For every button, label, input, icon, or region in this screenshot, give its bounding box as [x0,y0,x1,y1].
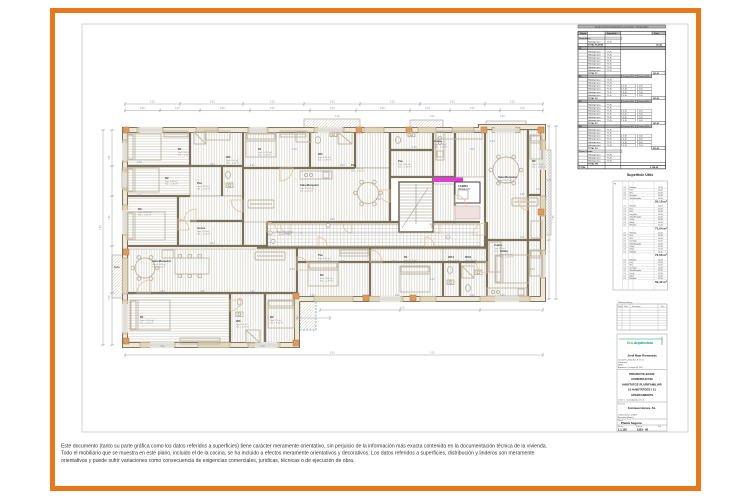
svg-text:2.1: 2.1 [624,243,627,245]
svg-text:Sup: 8.9 m²: Sup: 8.9 m² [494,247,506,250]
svg-text:Per: Per [661,306,664,308]
svg-text:Sup: 4.45 m²: Sup: 4.45 m² [318,156,331,159]
svg-text:Habitatge tipus: Habitatge tipus [588,94,601,97]
svg-text:Dormitori: Dormitori [630,194,638,197]
svg-text:7.25: 7.25 [546,195,548,200]
svg-text:2.1: 2.1 [624,217,627,219]
svg-text:Habitatge tipus: Habitatge tipus [588,113,601,116]
svg-text:Habitatge tipus: Habitatge tipus [588,153,601,156]
svg-text:3.10: 3.10 [430,116,435,118]
svg-text:Sup: 3.3 m²: Sup: 3.3 m² [465,259,477,262]
svg-text:Rev.N: Rev.N [618,306,624,308]
svg-text:Sup: 9.20 m²: Sup: 9.20 m² [500,253,513,256]
svg-text:3.10: 3.10 [390,102,395,104]
svg-text:Terrassa (50%): Terrassa (50%) [638,75,650,78]
svg-text:WC2: WC2 [465,255,472,259]
svg-text:77,45: 77,45 [607,136,612,138]
svg-text:Sala-Menjador: Sala-Menjador [498,175,518,179]
svg-text:2.1: 2.1 [624,276,627,278]
svg-text:Pas: Pas [318,253,323,257]
svg-text:2.1: 2.1 [624,241,627,243]
svg-text:2.40: 2.40 [250,291,255,293]
svg-text:3.10: 3.10 [450,102,455,104]
svg-text:2.1: 2.1 [624,235,627,237]
svg-text:Sup: 10.30 m²: Sup: 10.30 m² [138,211,152,214]
svg-text:Sup: 3.05 m²: Sup: 3.05 m² [398,163,411,166]
svg-text:Sol + 1.20 m²: Sol + 1.20 m² [318,260,331,263]
svg-text:77,45: 77,45 [607,154,612,156]
svg-text:2.40: 2.40 [290,269,295,271]
svg-text:73,56 m²: 73,56 m² [655,253,667,257]
svg-text:C/ Barcelona Ca 08/19: C/ Barcelona Ca 08/19 [618,413,637,416]
svg-text:TOTAL P3: TOTAL P3 [588,122,598,125]
svg-text:Habitatge tipus: Habitatge tipus [588,128,601,131]
svg-text:2.1: 2.1 [624,190,627,192]
svg-text:Habitatge tipus: Habitatge tipus [588,107,601,110]
svg-text:Superficie: Superficie [607,33,618,35]
svg-text:Arquitecte. Col·legiat 34.7817: Arquitecte. Col·legiat 34.7817 [618,366,643,369]
svg-text:orientativos y puede sufrir va: orientativos y puede sufrir variaciones … [61,458,354,464]
svg-text:3.10: 3.10 [510,102,515,104]
svg-text:HABITATGE PLURIFAMILIAR: HABITATGE PLURIFAMILIAR [622,382,662,386]
svg-text:2.40: 2.40 [376,199,381,201]
svg-text:123,45: 123,45 [656,44,663,47]
svg-text:12,34: 12,34 [658,241,663,243]
svg-text:Sol + 1.20 m²: Sol + 1.20 m² [498,182,511,185]
svg-text:2.40: 2.40 [392,261,397,263]
svg-text:12,34: 12,34 [658,222,663,224]
svg-text:Pas: Pas [630,235,633,237]
svg-text:WC1: WC1 [448,255,455,259]
svg-text:2.40: 2.40 [137,195,142,197]
svg-text:2.1: 2.1 [624,265,627,267]
svg-text:Promotor:: Promotor: [618,403,626,406]
svg-text:TOTAL P4: TOTAL P4 [588,147,598,150]
svg-text:2.1: 2.1 [624,208,627,210]
svg-text:Habitatge tipus: Habitatge tipus [588,116,601,119]
svg-text:Sala-Menjador: Sala-Menjador [630,217,642,219]
svg-text:Sup: 3.65 m²: Sup: 3.65 m² [318,257,331,260]
svg-text:12,34: 12,34 [658,243,663,245]
svg-text:Sol + 1.20 m²: Sol + 1.20 m² [434,146,447,149]
svg-text:Sol + 1.20 m²: Sol + 1.20 m² [152,266,165,269]
svg-text:Sol + 1.20 m²: Sol + 1.20 m² [318,159,331,162]
svg-text:2.1: 2.1 [624,249,627,251]
svg-text:Pas: Pas [351,163,356,167]
svg-text:Habitatge tipus: Habitatge tipus [588,53,601,56]
svg-text:Pas: Pas [630,208,633,210]
svg-text:Sup: 7.70 m²: Sup: 7.70 m² [434,143,447,146]
svg-text:Habitatge tipus: Habitatge tipus [588,85,601,88]
svg-text:Todo el mobiliario que se mues: Todo el mobiliario que se muestra en est… [61,451,535,457]
svg-text:WC: WC [318,152,323,156]
svg-text:WC: WC [226,155,231,159]
svg-text:77,45: 77,45 [607,108,612,110]
svg-text:Sol + 1.20 m²: Sol + 1.20 m² [197,233,210,236]
svg-text:Terrassa (50%): Terrassa (50%) [638,100,650,103]
svg-text:77,45: 77,45 [607,142,612,144]
svg-text:77,45: 77,45 [607,58,612,60]
svg-text:3.10: 3.10 [500,116,505,118]
svg-text:2.1: 2.1 [624,259,627,261]
svg-text:12,34: 12,34 [658,219,663,221]
svg-text:2.1: 2.1 [624,211,627,213]
svg-text:Sol + 1.20 m²: Sol + 1.20 m² [197,188,210,191]
svg-text:12,34: 12,34 [658,273,663,275]
svg-text:12,34: 12,34 [658,211,663,213]
svg-text:1923 - 06: 1923 - 06 [637,427,649,431]
svg-text:12,34: 12,34 [658,187,663,189]
svg-text:12,34: 12,34 [658,276,663,278]
svg-text:2.40: 2.40 [470,149,475,151]
svg-text:3.10: 3.10 [430,353,435,355]
svg-text:12,34: 12,34 [658,214,663,216]
svg-text:77,45: 77,45 [607,61,612,63]
svg-text:Habitatge tipus: Habitatge tipus [588,66,601,69]
svg-text:PROJECTE BASIC: PROJECTE BASIC [629,372,655,376]
svg-text:12,34: 12,34 [658,233,663,235]
svg-text:2.1: 2.1 [624,273,627,275]
svg-text:Sol + 1.20 m²: Sol + 1.20 m² [320,280,333,283]
svg-text:2.1: 2.1 [624,262,627,264]
svg-text:Balcó: Balcó [630,222,635,224]
svg-text:Sol + 1.20 m²: Sol + 1.20 m² [300,190,313,193]
svg-text:Sala-Menjador: Sala-Menjador [630,243,642,245]
svg-text:2.40: 2.40 [137,162,142,164]
svg-text:Terrassa (50%): Terrassa (50%) [623,100,635,103]
svg-text:2.1: 2.1 [624,222,627,224]
svg-text:Terrassa (50%): Terrassa (50%) [623,125,635,128]
svg-text:Habitatge tipus: Habitatge tipus [588,78,601,81]
svg-text:TOTAL PLANTA: TOTAL PLANTA [588,44,604,47]
svg-text:Acces: Acces [197,226,206,230]
svg-text:2.1: 2.1 [624,246,627,248]
svg-text:3.10: 3.10 [400,308,405,310]
svg-text:2,05: 2,05 [639,95,643,97]
svg-text:2.40: 2.40 [210,164,215,166]
svg-text:77,45: 77,45 [607,51,612,53]
svg-text:Habitatge tipus: Habitatge tipus [588,110,601,113]
svg-text:2,05: 2,05 [639,120,643,122]
svg-text:D1: D1 [404,255,408,259]
svg-text:12,34: 12,34 [658,249,663,251]
svg-text:TOTAL PB: TOTAL PB [588,163,598,166]
svg-text:Formasa Homes, SL.: Formasa Homes, SL. [628,406,657,410]
svg-text:2.40: 2.40 [340,261,345,263]
svg-text:77,45: 77,45 [607,54,612,56]
svg-text:12,34: 12,34 [658,246,663,248]
svg-text:D1: D1 [258,147,262,151]
svg-text:7.25: 7.25 [100,225,102,230]
svg-text:Revision History: Revision History [618,301,632,304]
svg-text:12,34: 12,34 [658,262,663,264]
svg-text:2.40: 2.40 [520,237,525,239]
svg-text:55,18 m²: 55,18 m² [655,200,667,204]
svg-text:WC: WC [236,319,241,323]
svg-text:3.10: 3.10 [150,102,155,104]
svg-text:12,34: 12,34 [658,208,663,210]
svg-text:77,45: 77,45 [607,64,612,66]
svg-text:Sup: 21.30 m²: Sup: 21.30 m² [300,187,314,190]
svg-text:Balco: Balco [114,266,121,269]
svg-text:59,42 m²: 59,42 m² [655,280,667,284]
svg-text:3.10: 3.10 [330,102,335,104]
svg-text:Planta Coberta: Planta Coberta [579,150,593,153]
svg-text:2.1: 2.1 [624,251,627,253]
svg-text:Cuina: Cuina [434,139,442,143]
svg-text:Terrassa (50%): Terrassa (50%) [623,75,635,78]
svg-text:77,45: 77,45 [607,95,612,97]
svg-text:Sup: 3.4 m²: Sup: 3.4 m² [448,259,460,262]
svg-text:345,60: 345,60 [653,122,660,125]
svg-text:2.1: 2.1 [624,219,627,221]
svg-text:7.25: 7.25 [109,155,111,160]
svg-text:D2: D2 [532,159,536,163]
svg-text:77,45: 77,45 [607,104,612,106]
svg-text:2.40: 2.40 [430,224,435,226]
svg-text:Habitatge tipus: Habitatge tipus [588,82,601,85]
svg-text:3.10: 3.10 [380,108,385,110]
svg-text:Sol + 1.20 m²: Sol + 1.20 m² [448,262,461,265]
svg-text:2.40: 2.40 [340,165,345,167]
svg-text:12,34: 12,34 [658,235,663,237]
svg-text:2.40: 2.40 [430,279,435,281]
svg-text:345,60: 345,60 [653,97,660,100]
svg-text:4,10: 4,10 [623,120,627,122]
svg-text:Dormitori: Dormitori [630,213,638,216]
svg-text:2.40: 2.40 [412,147,417,149]
svg-text:Sala-Menjador: Sala-Menjador [152,259,172,263]
svg-text:Sup: 9.45 m²: Sup: 9.45 m² [320,277,333,280]
svg-text:12,34: 12,34 [658,267,663,269]
svg-text:12,34: 12,34 [658,217,663,219]
svg-text:D2: D2 [320,273,324,277]
svg-text:Habitatge tipus: Habitatge tipus [588,141,601,144]
svg-text:Sol + 1.20 m²: Sol + 1.20 m² [465,262,478,265]
svg-text:12,34: 12,34 [658,195,663,197]
svg-text:Sol + 1.20 m²: Sol + 1.20 m² [138,214,151,217]
svg-text:H1: H1 [614,184,616,186]
svg-text:345,60: 345,60 [653,147,660,150]
svg-text:Sup: 9.65 m²: Sup: 9.65 m² [178,151,191,154]
svg-text:Sol + 1.20 m²: Sol + 1.20 m² [226,162,239,165]
svg-text:Planta: Planta [580,32,587,35]
svg-text:Habitatge tipus: Habitatge tipus [588,57,601,60]
svg-text:Terrassa (50%): Terrassa (50%) [638,125,650,128]
svg-text:Planta Baixa: Planta Baixa [579,37,591,40]
svg-text:2.40: 2.40 [490,141,495,143]
svg-text:77,45: 77,45 [607,70,612,72]
svg-text:Habitatge tipus: Habitatge tipus [588,138,601,141]
svg-text:Sup: 26.45 m²: Sup: 26.45 m² [498,179,512,182]
svg-text:Sup: 4.10 m²: Sup: 4.10 m² [197,230,210,233]
svg-text:1:1.150: 1:1.150 [618,427,627,431]
svg-text:Sala-Menjador: Sala-Menjador [300,183,320,187]
svg-text:2.1: 2.1 [624,195,627,197]
svg-text:Balcó: Balcó [630,249,635,251]
svg-text:2.40: 2.40 [250,165,255,167]
svg-text:Habitatge tipus: Habitatge tipus [588,69,601,72]
svg-text:12,34: 12,34 [658,270,663,272]
svg-text:Habitatge tipus: Habitatge tipus [588,60,601,63]
svg-text:de 38.20 m²: de 38.20 m² [279,233,291,236]
svg-text:3.10: 3.10 [270,102,275,104]
svg-text:Total: Total [654,32,659,35]
svg-text:3.10: 3.10 [210,102,215,104]
svg-text:Sup: 2.95 m²: Sup: 2.95 m² [351,167,364,170]
svg-text:77,45: 77,45 [607,86,612,88]
svg-text:71,64 m²: 71,64 m² [655,226,667,230]
svg-text:3.10: 3.10 [140,108,145,110]
svg-text:Full:: Full: [658,426,662,428]
svg-text:Pas: Pas [630,262,633,264]
svg-text:77,45: 77,45 [607,158,612,160]
svg-text:Sol + 1.20 m²: Sol + 1.20 m² [351,170,364,173]
svg-text:3.10: 3.10 [520,108,525,110]
svg-text:Eco-Arquitectura: Eco-Arquitectura [627,341,653,345]
svg-text:Superficie Útils: Superficie Útils [627,172,653,177]
svg-text:2.40: 2.40 [292,149,297,151]
svg-text:CABINA: CABINA [458,184,468,188]
svg-text:7.25: 7.25 [109,215,111,220]
svg-text:3.10: 3.10 [425,108,430,110]
svg-text:Sol + 1.20 m²: Sol + 1.20 m² [500,256,513,259]
svg-text:3.10: 3.10 [270,108,275,110]
svg-text:Sup: 5.40 m²: Sup: 5.40 m² [226,159,239,162]
svg-text:2.1: 2.1 [624,270,627,272]
svg-text:77,45: 77,45 [607,89,612,91]
svg-text:4,10: 4,10 [623,145,627,147]
svg-text:77,45: 77,45 [607,114,612,116]
svg-text:Cuina: Cuina [630,219,635,221]
svg-text:Cuina: Cuina [494,243,502,247]
svg-text:2.1: 2.1 [624,233,627,235]
svg-text:Sol + 1.20 m²: Sol + 1.20 m² [165,183,178,186]
svg-text:D2: D2 [270,315,274,319]
svg-text:2.40: 2.40 [260,346,265,348]
svg-text:2.40: 2.40 [530,269,535,271]
svg-text:2.40: 2.40 [210,243,215,245]
svg-text:2.40: 2.40 [200,291,205,293]
svg-text:2.40: 2.40 [536,189,541,191]
svg-text:Este documento (tanto su parte: Este documento (tanto su parte gráfica c… [61,443,547,449]
svg-text:Pas: Pas [197,181,202,185]
svg-text:Sup: 7.9 m²: Sup: 7.9 m² [532,163,544,166]
svg-text:TOTAL P1: TOTAL P1 [588,72,598,75]
svg-text:77,45: 77,45 [607,120,612,122]
svg-text:12,34: 12,34 [658,206,663,208]
svg-text:CONSTRUCCIO: CONSTRUCCIO [631,377,653,381]
svg-text:Sala-Menjador: Sala-Menjador [630,198,642,200]
svg-text:3.10: 3.10 [335,116,340,118]
svg-text:Habitatge tipus: Habitatge tipus [588,103,601,106]
svg-text:2.1: 2.1 [624,198,627,200]
svg-text:Sol + 1.20 m²: Sol + 1.20 m² [270,322,283,325]
svg-text:Sol + 1.20 m²: Sol + 1.20 m² [258,154,271,157]
svg-text:Pas: Pas [630,190,633,192]
svg-text:2.40: 2.40 [160,291,165,293]
svg-text:Sup: 7.6 m²: Sup: 7.6 m² [270,319,282,322]
svg-text:3.10: 3.10 [470,108,475,110]
svg-text:3.10: 3.10 [220,108,225,110]
svg-text:77,45: 77,45 [607,133,612,135]
svg-text:Habitatge tipus: Habitatge tipus [588,132,601,135]
svg-text:Habitatge tipus: Habitatge tipus [588,91,601,94]
svg-text:2.1: 2.1 [624,187,627,189]
svg-text:77,45: 77,45 [607,145,612,147]
svg-text:77,45: 77,45 [607,129,612,131]
svg-text:2.1: 2.1 [624,206,627,208]
svg-text:2.40: 2.40 [395,295,400,297]
svg-text:12,34: 12,34 [658,265,663,267]
svg-text:3.10: 3.10 [330,353,335,355]
svg-text:D1: D1 [178,147,182,151]
svg-text:2.40: 2.40 [500,295,505,297]
svg-text:Sol + 1.20 m²: Sol + 1.20 m² [236,326,249,329]
svg-text:345,60: 345,60 [653,72,660,75]
svg-text:Planta Segona: Planta Segona [621,421,642,425]
svg-text:2.1: 2.1 [624,214,627,216]
svg-text:77,45: 77,45 [607,67,612,69]
svg-text:Jordi Maer Romaneda: Jordi Maer Romaneda [627,354,657,358]
svg-text:7.25: 7.25 [109,295,111,300]
svg-text:77,45: 77,45 [607,111,612,113]
svg-text:Sol + 1.20 m²: Sol + 1.20 m² [404,262,417,265]
svg-text:77,45: 77,45 [607,117,612,119]
svg-text:7.25: 7.25 [553,215,555,220]
svg-text:Sup: 11.2 m²: Sup: 11.2 m² [404,259,417,262]
svg-text:2,05: 2,05 [639,145,643,147]
svg-text:Sup: 4.2 m²: Sup: 4.2 m² [236,323,248,326]
svg-text:77,45: 77,45 [607,79,612,81]
svg-text:D1: D1 [140,315,144,319]
svg-text:2.1: 2.1 [624,238,627,240]
svg-text:Sol + 1.20 m²: Sol + 1.20 m² [494,250,507,253]
svg-text:Carrer I - Canto Agenda 23 - 2: Carrer I - Canto Agenda 23 - 25 [618,399,644,402]
svg-text:Sol + 1.20 m²: Sol + 1.20 m² [398,166,411,169]
svg-text:2.40: 2.40 [310,295,315,297]
svg-text:Sol + 1.20 m²: Sol + 1.20 m² [532,166,545,169]
svg-text:2.40: 2.40 [520,194,525,196]
svg-text:Habitatge tipus: Habitatge tipus [588,119,601,122]
svg-text:2.1: 2.1 [624,267,627,269]
svg-text:12,34: 12,34 [658,190,663,192]
svg-text:TOTAL P2: TOTAL P2 [588,97,598,100]
svg-text:Dormitori: Dormitori [630,240,638,243]
svg-text:Sup: 10.20 m²: Sup: 10.20 m² [258,151,272,154]
svg-text:77,45: 77,45 [607,92,612,94]
svg-text:Dormitori: Dormitori [630,266,638,269]
svg-text:Sup: 8.40 m²: Sup: 8.40 m² [165,180,178,183]
svg-text:Cuina: Cuina [630,273,635,275]
svg-text:Quadre General Superficies Con: Quadre General Superficies Construides i… [595,26,650,29]
svg-text:Cuina: Cuina [630,246,635,248]
svg-text:Habitatge tipus: Habitatge tipus [588,144,601,147]
svg-text:2.40: 2.40 [330,219,335,221]
svg-text:4,10: 4,10 [623,95,627,97]
svg-text:2.1: 2.1 [624,192,627,194]
svg-text:2.1: 2.1 [624,278,627,280]
svg-text:Descripcio: Descripcio [632,306,640,308]
svg-text:Sala-Menjador: Sala-Menjador [630,270,642,272]
svg-text:Barcelona (Barna): Barcelona (Barna) [618,416,634,419]
svg-text:77,45: 77,45 [607,139,612,141]
svg-text:HIDRAULIC: HIDRAULIC [458,188,471,191]
svg-text:Sup: 24.60 m²: Sup: 24.60 m² [152,263,166,266]
svg-text:10 HABITATGES I 21: 10 HABITATGES I 21 [628,388,656,392]
svg-text:12,34: 12,34 [658,192,663,194]
svg-text:APARCAMENTS: APARCAMENTS [631,393,653,397]
